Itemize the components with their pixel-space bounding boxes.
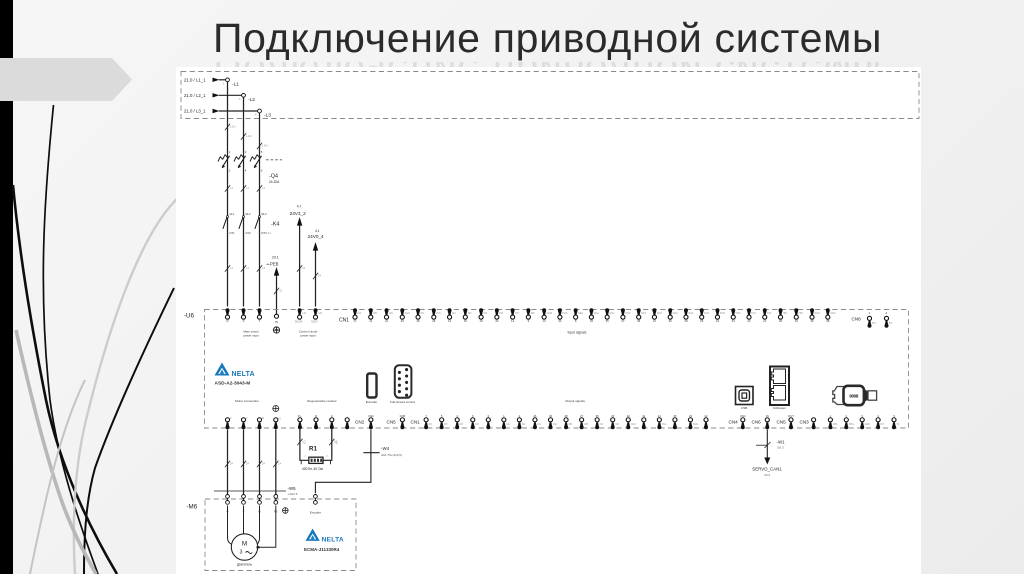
svg-text:1.4: 1.4 (246, 267, 250, 270)
svg-text:Encoder: Encoder (366, 400, 378, 404)
svg-text:OA: OA (537, 423, 541, 426)
svg-text:DC0V: DC0V (311, 321, 318, 324)
svg-text:3: 3 (240, 550, 243, 556)
svg-text:SGN: SGN (814, 312, 819, 315)
svg-text:26: 26 (700, 319, 704, 323)
svg-text:PUL: PUL (767, 312, 772, 315)
svg-text:DO1: DO1 (610, 312, 616, 315)
svg-text:T: T (259, 319, 261, 323)
svg-text:33: 33 (611, 414, 615, 418)
svg-text:28: 28 (432, 319, 436, 323)
svg-text:NELTA: NELTA (232, 371, 255, 378)
svg-text:485-: 485- (833, 423, 838, 426)
svg-text:1.4L2: 1.4L2 (246, 135, 253, 138)
svg-text:TX: TX (896, 423, 899, 426)
svg-text:32: 32 (627, 414, 631, 418)
svg-text:Encoder: Encoder (310, 511, 321, 515)
svg-text:45: 45 (416, 319, 420, 323)
svg-text:30: 30 (669, 319, 673, 323)
svg-text:CN5: CN5 (400, 414, 406, 418)
svg-text:Regenerative resistor: Regenerative resistor (307, 399, 336, 403)
svg-text:28: 28 (564, 414, 568, 418)
svg-text:SG: SG (522, 423, 526, 426)
svg-text:SGN: SGN (830, 312, 835, 315)
svg-text:23: 23 (732, 319, 736, 323)
svg-text:-: - (347, 414, 348, 418)
svg-text:+2: +2 (326, 456, 329, 458)
svg-text:RX: RX (881, 423, 885, 426)
svg-text:W: W (262, 417, 265, 420)
svg-text:OCZ: OCZ (631, 423, 637, 426)
svg-text:30: 30 (549, 414, 553, 418)
svg-text:/16.3: /16.3 (777, 446, 784, 450)
svg-text:5: 5 (255, 114, 257, 117)
svg-text:/OB: /OB (584, 423, 589, 426)
svg-text:5: 5 (261, 150, 263, 154)
svg-text:33: 33 (590, 319, 594, 323)
svg-text:24V0_4: 24V0_4 (308, 234, 325, 239)
svg-text:-L2: -L2 (248, 97, 255, 103)
svg-text:485+: 485+ (849, 423, 855, 426)
svg-text:-L1: -L1 (232, 81, 239, 87)
svg-text:L1C: L1C (302, 312, 307, 315)
svg-text:CN5: CN5 (387, 420, 397, 425)
svg-text:4: 4 (245, 169, 247, 173)
svg-text:-01: -01 (279, 290, 283, 293)
svg-text:39: 39 (637, 319, 641, 323)
svg-text:26: 26 (533, 414, 537, 418)
svg-text:USB: USB (741, 406, 747, 410)
svg-text:SG: SG (506, 423, 510, 426)
svg-text:1: 1 (229, 150, 231, 154)
svg-text:34: 34 (558, 319, 562, 323)
svg-text:CN5: CN5 (777, 420, 787, 425)
svg-text:4G1.75+(3x0,5): 4G1.75+(3x0,5) (381, 453, 402, 457)
svg-text:2/T1: 2/T1 (229, 231, 235, 235)
svg-text:CN1: CN1 (339, 318, 349, 324)
svg-text:3/4: 3/4 (318, 275, 322, 278)
svg-text:10: 10 (543, 319, 547, 323)
svg-text:HPL: HPL (783, 312, 788, 315)
svg-text:31: 31 (653, 319, 657, 323)
svg-text:DO2: DO2 (625, 312, 631, 315)
svg-text:37: 37 (621, 319, 625, 323)
svg-text:/9.1: /9.1 (267, 232, 272, 235)
svg-text:DO: DO (444, 423, 448, 426)
svg-text:DI6: DI6 (499, 312, 503, 315)
svg-text:PUL: PUL (751, 312, 756, 315)
svg-text:4.7: 4.7 (297, 205, 302, 209)
svg-text:6: 6 (261, 169, 263, 173)
svg-text:1.4: 1.4 (262, 267, 266, 270)
svg-text:DC24V: DC24V (295, 321, 303, 324)
svg-text:POS: POS (562, 312, 567, 315)
svg-text:DO5: DO5 (720, 312, 726, 315)
svg-text:R: R (226, 319, 228, 323)
svg-text:PLS: PLS (436, 312, 441, 315)
svg-text:-K4: -K4 (271, 222, 279, 228)
svg-text:24-32A: 24-32A (269, 180, 280, 184)
svg-text:U: U (230, 417, 232, 420)
svg-text:+1: +1 (304, 456, 307, 458)
svg-text:1/4: 1/4 (262, 463, 266, 466)
svg-text:-L3: -L3 (264, 113, 271, 119)
svg-text:DI5: DI5 (373, 312, 377, 315)
svg-text:11: 11 (369, 319, 372, 323)
svg-text:1/4: 1/4 (246, 463, 250, 466)
svg-text:1: 1 (869, 311, 871, 315)
svg-text:3/L2: 3/L2 (245, 212, 251, 216)
svg-text:21: 21 (658, 414, 662, 418)
svg-text:SGN: SGN (693, 423, 698, 426)
svg-text:NEG: NEG (578, 312, 583, 315)
svg-text:/SG: /SG (389, 312, 393, 315)
svg-text:18: 18 (480, 319, 484, 323)
svg-text:DI4: DI4 (357, 312, 361, 315)
svg-text:SERVO_CAN1: SERVO_CAN1 (752, 467, 782, 472)
svg-text:19: 19 (795, 319, 799, 323)
svg-text:21.0 / L3_1: 21.0 / L3_1 (184, 109, 206, 114)
svg-text:21.0 / L2_1: 21.0 / L2_1 (184, 93, 206, 98)
svg-text:DO2: DO2 (641, 312, 647, 315)
svg-text:-U6: -U6 (184, 313, 195, 320)
svg-text:1/4: 1/4 (230, 463, 234, 466)
svg-text:OUT: OUT (788, 414, 794, 418)
svg-text:+4G2.5: +4G2.5 (288, 492, 298, 496)
svg-text:1.4: 1.4 (262, 187, 266, 190)
svg-text:3: 3 (239, 98, 241, 101)
svg-text:27: 27 (580, 414, 584, 418)
svg-text:GND: GND (865, 423, 871, 426)
svg-text:24V3_2: 24V3_2 (290, 211, 307, 216)
svg-text:1.4: 1.4 (230, 187, 234, 190)
svg-text:R1: R1 (309, 446, 317, 453)
svg-text:1.4: 1.4 (230, 267, 234, 270)
svg-text:ECMA-J11330R4: ECMA-J11330R4 (304, 547, 340, 552)
svg-text:-M6: -M6 (187, 504, 198, 511)
svg-text:CN1: CN1 (411, 420, 421, 425)
svg-text:PUL: PUL (662, 423, 667, 426)
svg-text:NELTA: NELTA (322, 536, 344, 543)
svg-text:14: 14 (511, 319, 515, 323)
svg-text:Motor connection: Motor connection (235, 399, 259, 403)
svg-text:/PL: /PL (420, 312, 424, 315)
svg-text:DO3: DO3 (673, 312, 679, 315)
svg-text:OZ: OZ (600, 423, 604, 426)
svg-text:-W5: -W5 (288, 486, 297, 491)
svg-text:OB: OB (568, 423, 572, 426)
svg-text:DO: DO (460, 423, 464, 426)
svg-text:Двигатель: Двигатель (237, 563, 252, 567)
svg-text:CN8: CN8 (852, 317, 862, 322)
svg-text:1.4L1: 1.4L1 (230, 126, 237, 129)
svg-text:FG: FG (278, 418, 281, 421)
svg-text:M: M (242, 541, 247, 548)
svg-text:1.4: 1.4 (246, 187, 250, 190)
svg-text:23.1: 23.1 (272, 256, 279, 260)
svg-text:Input signals: Input signals (567, 331, 586, 335)
svg-text:CN2: CN2 (368, 414, 374, 418)
svg-text:36: 36 (810, 319, 814, 323)
svg-text:COM: COM (547, 312, 553, 315)
svg-text:20: 20 (779, 319, 783, 323)
svg-text:/OA: /OA (553, 423, 558, 426)
svg-text:1/L1: 1/L1 (229, 212, 235, 216)
svg-text:19.3: 19.3 (764, 473, 770, 477)
svg-text:15: 15 (464, 319, 468, 323)
svg-text:DO4: DO4 (688, 312, 694, 315)
svg-text:1/4: 1/4 (278, 463, 282, 466)
svg-text:CN3: CN3 (800, 420, 810, 425)
svg-text:/OZ: /OZ (615, 423, 620, 426)
svg-text:DI1: DI1 (452, 312, 456, 315)
svg-text:2: 2 (229, 169, 231, 173)
svg-text:-W4: -W4 (381, 446, 390, 451)
svg-text:31: 31 (642, 414, 646, 418)
svg-text:24: 24 (716, 319, 720, 323)
svg-text:CN6: CN6 (752, 420, 762, 425)
svg-text:V: V (246, 417, 248, 420)
svg-text:ASD-A2-3043-M: ASD-A2-3043-M (215, 381, 251, 387)
svg-text:DO5: DO5 (736, 312, 742, 315)
svg-text:9008: 9008 (849, 394, 858, 399)
svg-text:DI2: DI2 (468, 312, 472, 315)
svg-text:22: 22 (747, 319, 751, 323)
svg-text:-Q4: -Q4 (269, 174, 278, 180)
svg-text:28: 28 (684, 319, 688, 323)
svg-text:DO3: DO3 (657, 312, 663, 315)
svg-text:CN4: CN4 (740, 414, 746, 418)
svg-text:21.0 / L1_1: 21.0 / L1_1 (184, 77, 206, 82)
svg-text:25: 25 (673, 414, 677, 418)
svg-text:DI8: DI8 (531, 312, 535, 315)
svg-text:41: 41 (385, 319, 389, 323)
svg-text:DO1: DO1 (594, 312, 600, 315)
svg-text:400 Вт, 40 Ом: 400 Вт, 40 Ом (302, 467, 324, 471)
svg-text:1.4L3: 1.4L3 (262, 145, 269, 148)
svg-text:DO4: DO4 (704, 312, 710, 315)
svg-text:1/4: 1/4 (302, 267, 306, 270)
svg-text:PEB: PEB (270, 262, 279, 267)
svg-text:S: S (243, 319, 245, 323)
svg-text:BT+: BT+ (872, 322, 877, 325)
svg-text:Output signals: Output signals (565, 399, 585, 403)
svg-text:HPL: HPL (799, 312, 804, 315)
svg-text:2: 2 (886, 311, 888, 315)
svg-text:Full-closed control: Full-closed control (390, 400, 415, 404)
svg-text:SGN: SGN (405, 312, 410, 315)
svg-text:CANopen: CANopen (773, 406, 786, 410)
svg-text:35: 35 (596, 414, 600, 418)
svg-text:3: 3 (245, 150, 247, 154)
svg-text:L2C: L2C (318, 312, 323, 315)
svg-text:6/T3: 6/T3 (261, 231, 267, 235)
svg-text:IN: IN (766, 414, 769, 418)
svg-text:5/L3: 5/L3 (261, 212, 267, 216)
svg-text:PE: PE (275, 320, 279, 324)
svg-text:1: 1 (223, 82, 225, 85)
svg-text:C: C (331, 414, 333, 418)
svg-text:BT-: BT- (889, 322, 893, 325)
svg-text:power input: power input (300, 334, 316, 338)
svg-text:38: 38 (826, 319, 830, 323)
svg-text:44: 44 (495, 319, 499, 323)
svg-text:DI7: DI7 (515, 312, 519, 315)
svg-text:40: 40 (401, 319, 405, 323)
svg-text:22: 22 (704, 414, 708, 418)
svg-text:power input: power input (243, 334, 259, 338)
svg-text:23: 23 (689, 414, 693, 418)
svg-text:21: 21 (763, 319, 767, 323)
svg-text:20: 20 (304, 443, 307, 445)
svg-text:D: D (315, 414, 317, 418)
svg-text:DO: DO (475, 423, 479, 426)
svg-text:4.1: 4.1 (315, 229, 320, 233)
svg-text:20: 20 (336, 443, 339, 445)
svg-text:DI3: DI3 (483, 312, 487, 315)
svg-text:35: 35 (606, 319, 610, 323)
svg-text:-W1: -W1 (777, 440, 786, 445)
svg-text:4/T2: 4/T2 (245, 231, 251, 235)
svg-text:P+: P+ (298, 414, 302, 418)
svg-text:CN2: CN2 (355, 420, 365, 425)
svg-text:CN4: CN4 (729, 420, 739, 425)
svg-text:12: 12 (448, 319, 452, 323)
svg-text:DO: DO (429, 423, 433, 426)
svg-text:17: 17 (353, 319, 357, 323)
